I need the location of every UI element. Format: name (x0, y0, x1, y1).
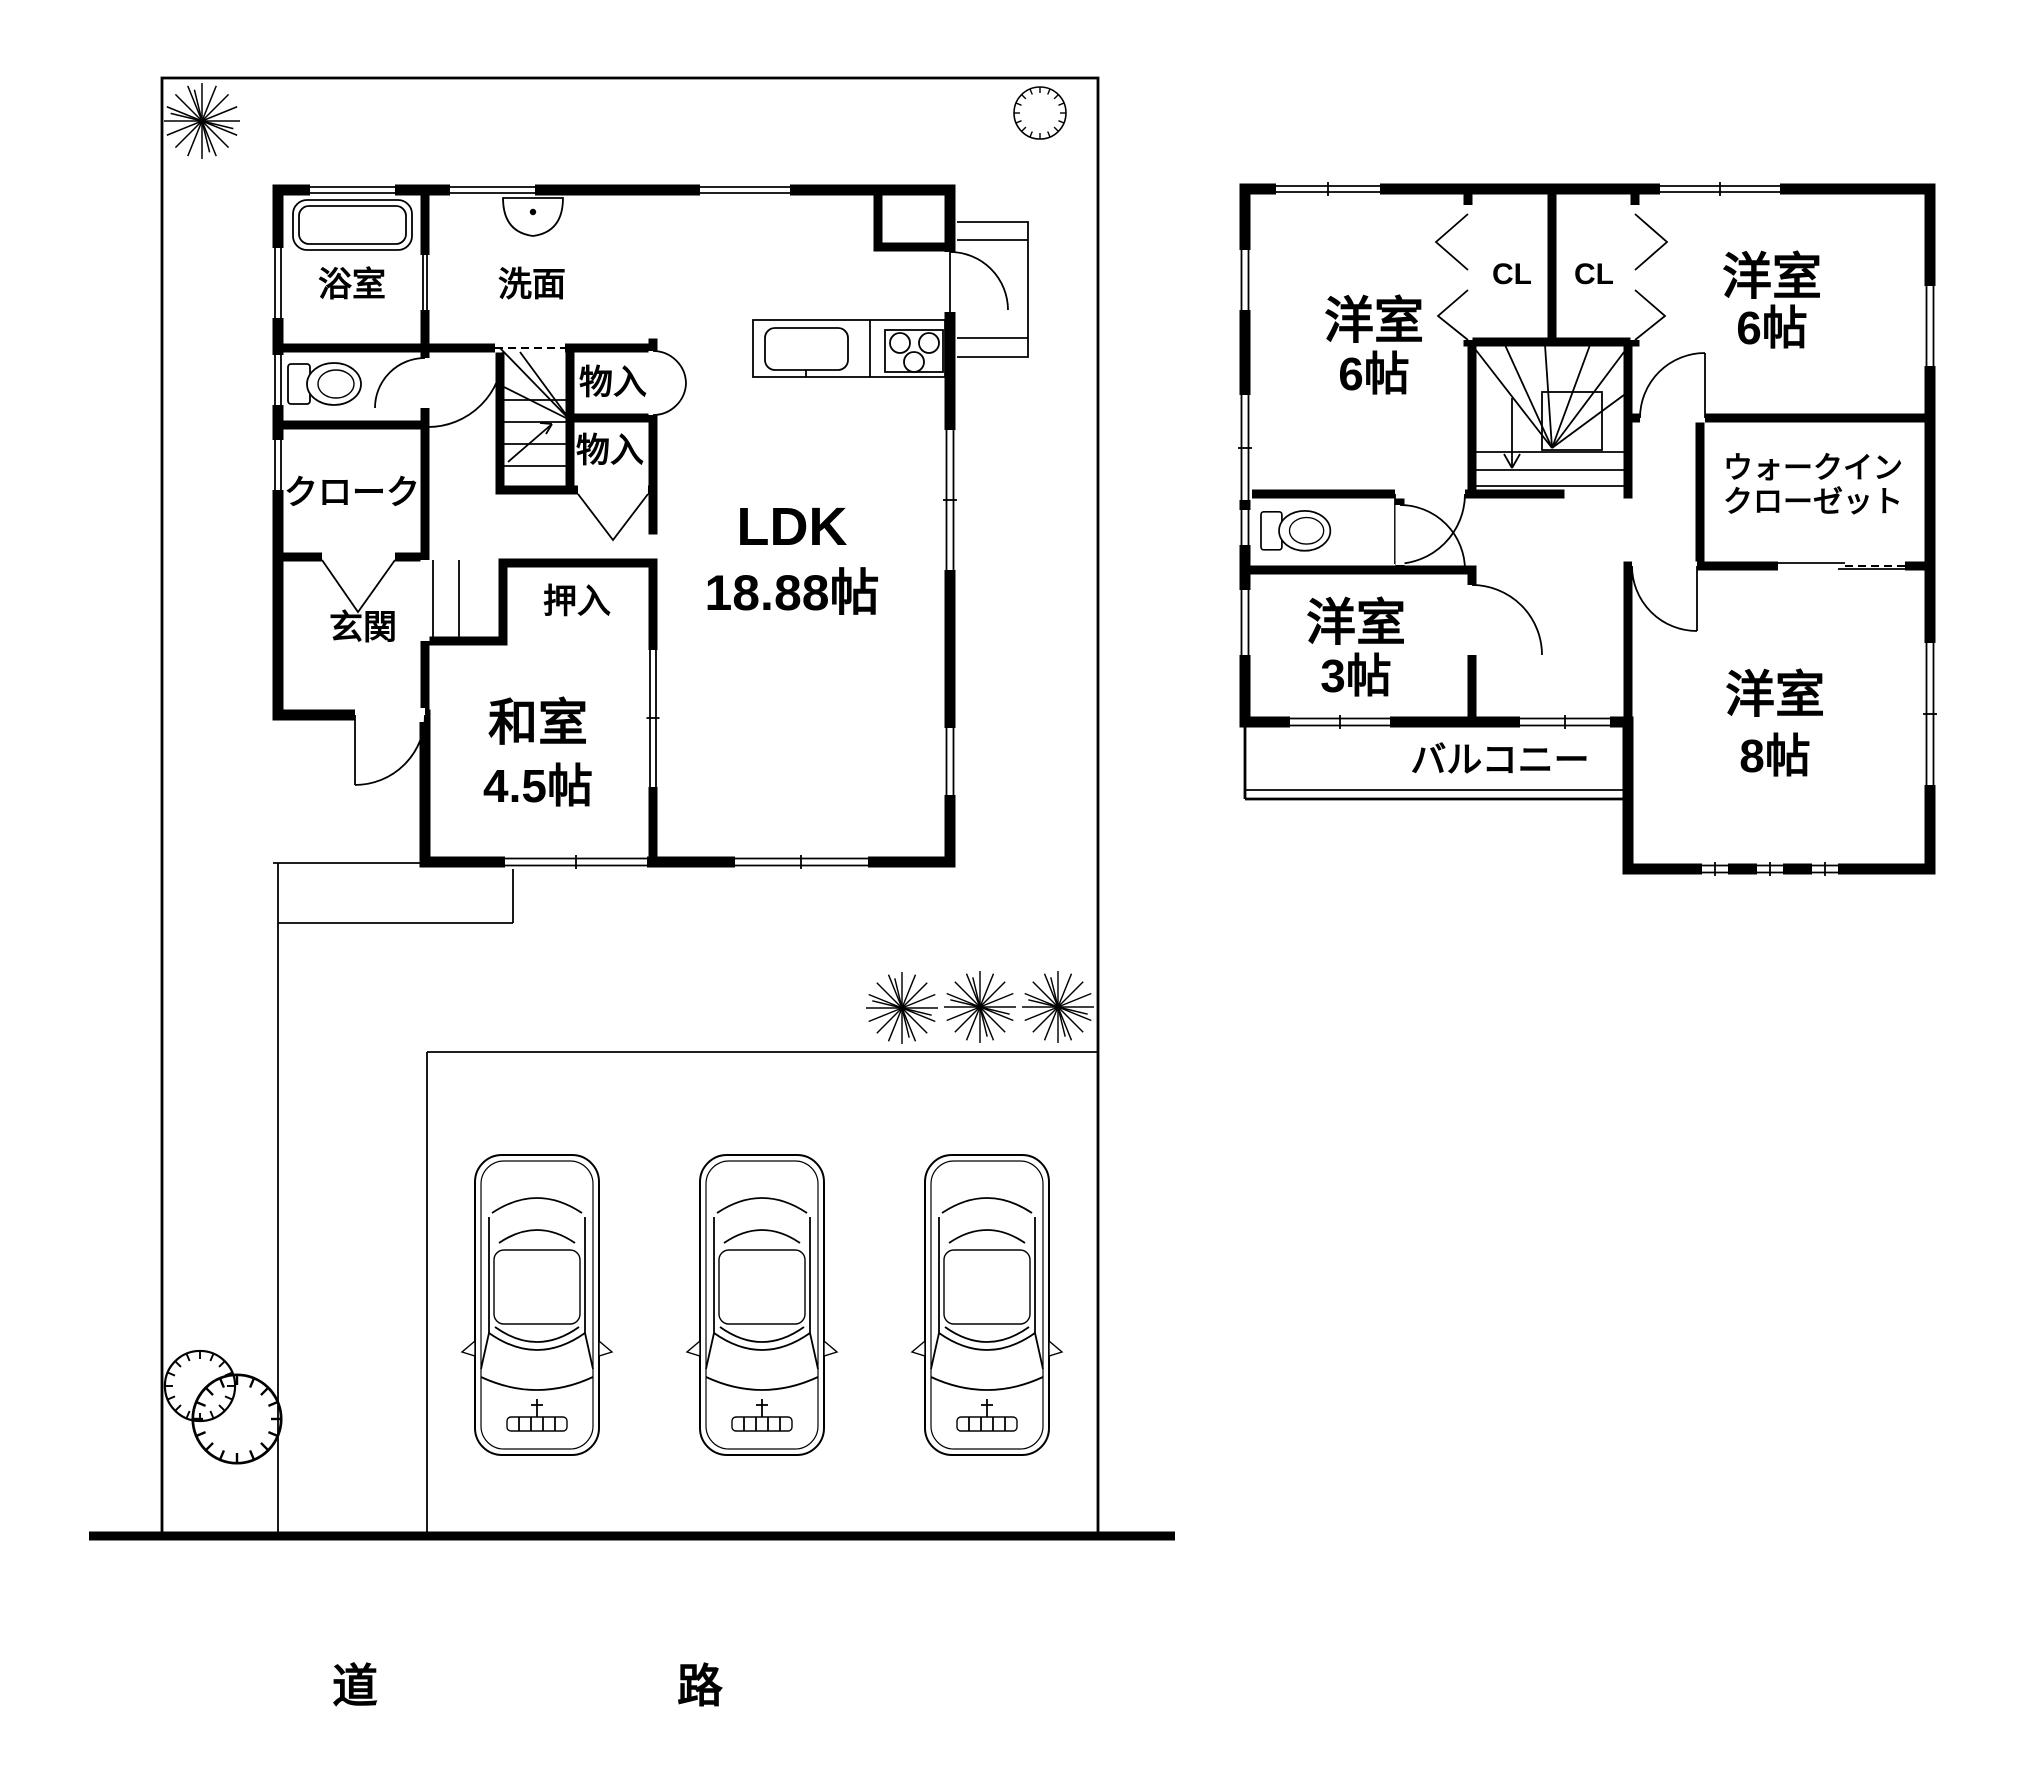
room-label-wic-2: クローゼット (1723, 486, 1903, 519)
window (1238, 590, 1252, 655)
window (1923, 286, 1937, 366)
closet-door (1436, 205, 1473, 340)
room-label-storage1: 物入 (579, 364, 647, 402)
toilet-icon (1261, 511, 1330, 551)
southeast-room-door (1632, 562, 1697, 632)
room-label-ldk: LDK (737, 497, 848, 557)
staircase-2f (1472, 345, 1628, 486)
window (310, 183, 395, 197)
bath-door (421, 255, 430, 310)
toilet2-door (1396, 505, 1466, 570)
window (271, 355, 285, 405)
room-label-cloak: クローク (284, 474, 420, 512)
road-label-1: 道 (332, 1660, 378, 1712)
car-icon (687, 1155, 837, 1455)
sink-icon (503, 198, 563, 236)
car-icon (462, 1155, 612, 1455)
shrub-icon (866, 972, 938, 1044)
storage-door (578, 486, 648, 541)
parking-area (462, 1155, 1062, 1455)
shrub-icon (1022, 971, 1094, 1043)
room-size-southeast: 8帖 (1739, 730, 1811, 782)
room-label-entrance: 玄関 (329, 609, 397, 647)
shrub-icon (165, 1351, 235, 1421)
cloak-door (322, 553, 395, 613)
balcony-door (1520, 715, 1610, 729)
window (1812, 862, 1838, 876)
window (1238, 250, 1252, 310)
tree-icon (1014, 87, 1066, 139)
wic-sliding-door (1778, 562, 1905, 571)
staircase-1f (500, 348, 570, 466)
car-icon (912, 1155, 1062, 1455)
window (1238, 510, 1252, 545)
floor-plan-canvas: 浴室 洗面 物入 物入 クローク 玄関 押入 和室 4.5帖 LDK 18.88… (0, 0, 2019, 1786)
hall-door-arc (428, 352, 503, 427)
northeast-room-door (1640, 353, 1705, 423)
window (700, 183, 790, 197)
window (271, 248, 285, 318)
room-label-wic-1: ウォークイン (1723, 452, 1903, 485)
room-label-balcony: バルコニー (1410, 739, 1589, 780)
window (1923, 643, 1937, 785)
back-porch (957, 222, 1028, 357)
tree-icon (164, 83, 240, 159)
window (943, 430, 957, 570)
room-size-west: 6帖 (1338, 348, 1410, 400)
room-label-storage2: 物入 (576, 432, 644, 470)
room-label-northeast: 洋室 (1722, 249, 1822, 305)
floor2-plan: 洋室 6帖 CL CL 洋室 6帖 ウォークイン クローゼット 洋室 3帖 バル… (1238, 182, 1937, 876)
room-label-bath: 浴室 (318, 265, 386, 304)
room-label-west: 洋室 (1324, 293, 1424, 349)
window (271, 440, 285, 490)
room-label-southeast: 洋室 (1725, 667, 1825, 723)
entrance-door (355, 708, 425, 785)
washroom-sliding-door (495, 344, 565, 353)
room-label-futon-closet: 押入 (543, 583, 611, 621)
window (450, 183, 535, 197)
window (1660, 182, 1780, 196)
fusuma-opening (647, 650, 660, 787)
room-size-small: 3帖 (1320, 650, 1392, 702)
room-label-cl1: CL (1492, 258, 1532, 291)
room-label-cl2: CL (1574, 258, 1614, 291)
window (1290, 715, 1390, 729)
window (943, 728, 957, 795)
window (1702, 862, 1728, 876)
small-room-door (1468, 585, 1543, 655)
closet-door (1631, 205, 1668, 340)
window (735, 855, 868, 869)
toilet-icon (288, 363, 361, 405)
shrub-icon (193, 1375, 281, 1463)
back-door (943, 252, 1008, 312)
storage-doors (649, 351, 687, 415)
room-size-northeast: 6帖 (1736, 302, 1808, 354)
window (1276, 182, 1380, 196)
toilet-door (375, 358, 430, 408)
kitchen-counter (753, 320, 945, 377)
window (505, 855, 647, 869)
bathtub-icon (293, 200, 412, 250)
window (1238, 395, 1252, 500)
room-label-washstand: 洗面 (498, 266, 566, 304)
room-size-tatami: 4.5帖 (483, 760, 593, 812)
floor1-plan: 浴室 洗面 物入 物入 クローク 玄関 押入 和室 4.5帖 LDK 18.88… (271, 183, 1028, 869)
room-label-tatami: 和室 (488, 695, 588, 751)
window (1757, 862, 1783, 876)
room-label-small: 洋室 (1306, 595, 1406, 651)
west-room-door (1395, 490, 1465, 565)
shrub-icon (944, 971, 1016, 1043)
hall-opening (421, 560, 430, 641)
road-label-2: 路 (677, 1660, 724, 1712)
room-size-ldk: 18.88帖 (704, 565, 879, 621)
